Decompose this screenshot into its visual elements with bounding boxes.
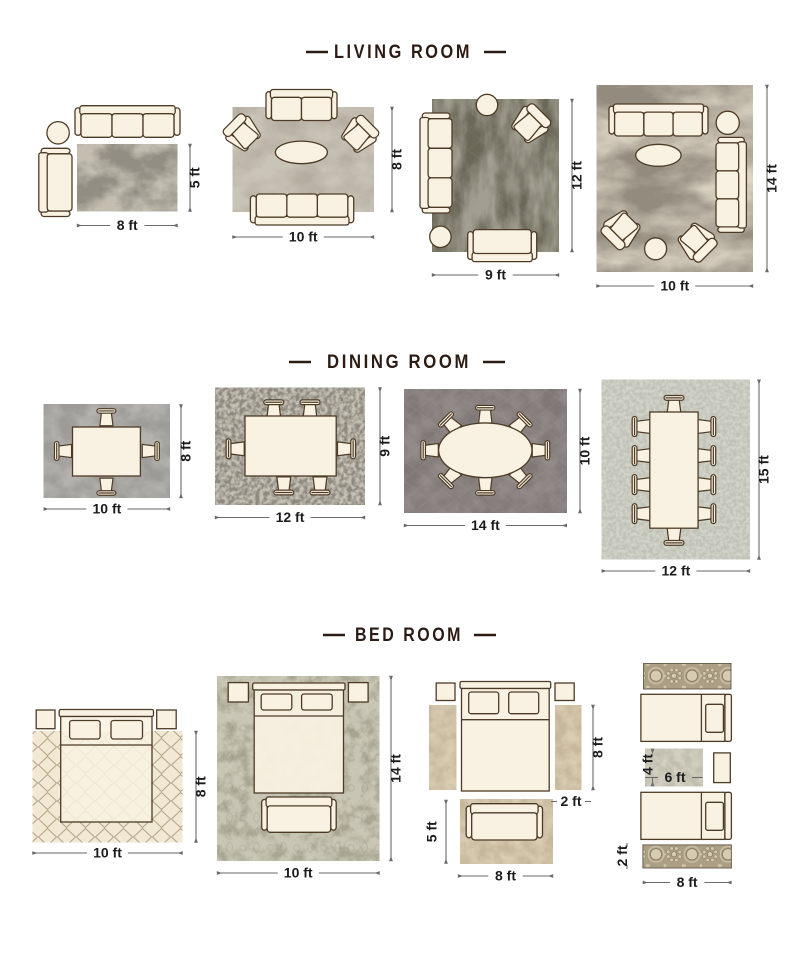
svg-text:BED ROOM: BED ROOM [355, 625, 463, 646]
svg-text:10 ft: 10 ft [284, 865, 313, 881]
svg-text:6 ft: 6 ft [665, 769, 686, 785]
svg-text:LIVING ROOM: LIVING ROOM [334, 42, 472, 63]
svg-text:9 ft: 9 ft [377, 435, 393, 456]
svg-text:8 ft: 8 ft [117, 217, 138, 233]
svg-text:10 ft: 10 ft [93, 501, 122, 517]
svg-text:10 ft: 10 ft [93, 845, 122, 861]
svg-text:15 ft: 15 ft [756, 455, 772, 484]
svg-text:8 ft: 8 ft [495, 868, 516, 884]
svg-text:8 ft: 8 ft [677, 874, 698, 890]
svg-text:14 ft: 14 ft [388, 754, 404, 783]
svg-text:9 ft: 9 ft [485, 267, 506, 283]
svg-text:5 ft: 5 ft [424, 821, 440, 842]
svg-text:8 ft: 8 ft [193, 776, 209, 797]
svg-text:14 ft: 14 ft [471, 517, 500, 533]
svg-text:8 ft: 8 ft [389, 149, 405, 170]
svg-text:8 ft: 8 ft [590, 737, 606, 758]
svg-text:12 ft: 12 ft [569, 161, 585, 190]
svg-text:DINING ROOM: DINING ROOM [327, 352, 471, 373]
svg-text:10 ft: 10 ft [289, 229, 318, 245]
svg-text:14 ft: 14 ft [764, 164, 780, 193]
svg-text:10 ft: 10 ft [577, 436, 593, 465]
svg-text:2 ft: 2 ft [614, 845, 630, 866]
svg-text:12 ft: 12 ft [276, 509, 305, 525]
svg-text:10 ft: 10 ft [660, 278, 689, 294]
svg-text:5 ft: 5 ft [187, 167, 203, 188]
svg-text:12 ft: 12 ft [662, 563, 691, 579]
svg-text:8 ft: 8 ft [178, 440, 194, 461]
svg-text:2 ft: 2 ft [561, 793, 582, 809]
svg-text:4 ft: 4 ft [640, 754, 656, 775]
